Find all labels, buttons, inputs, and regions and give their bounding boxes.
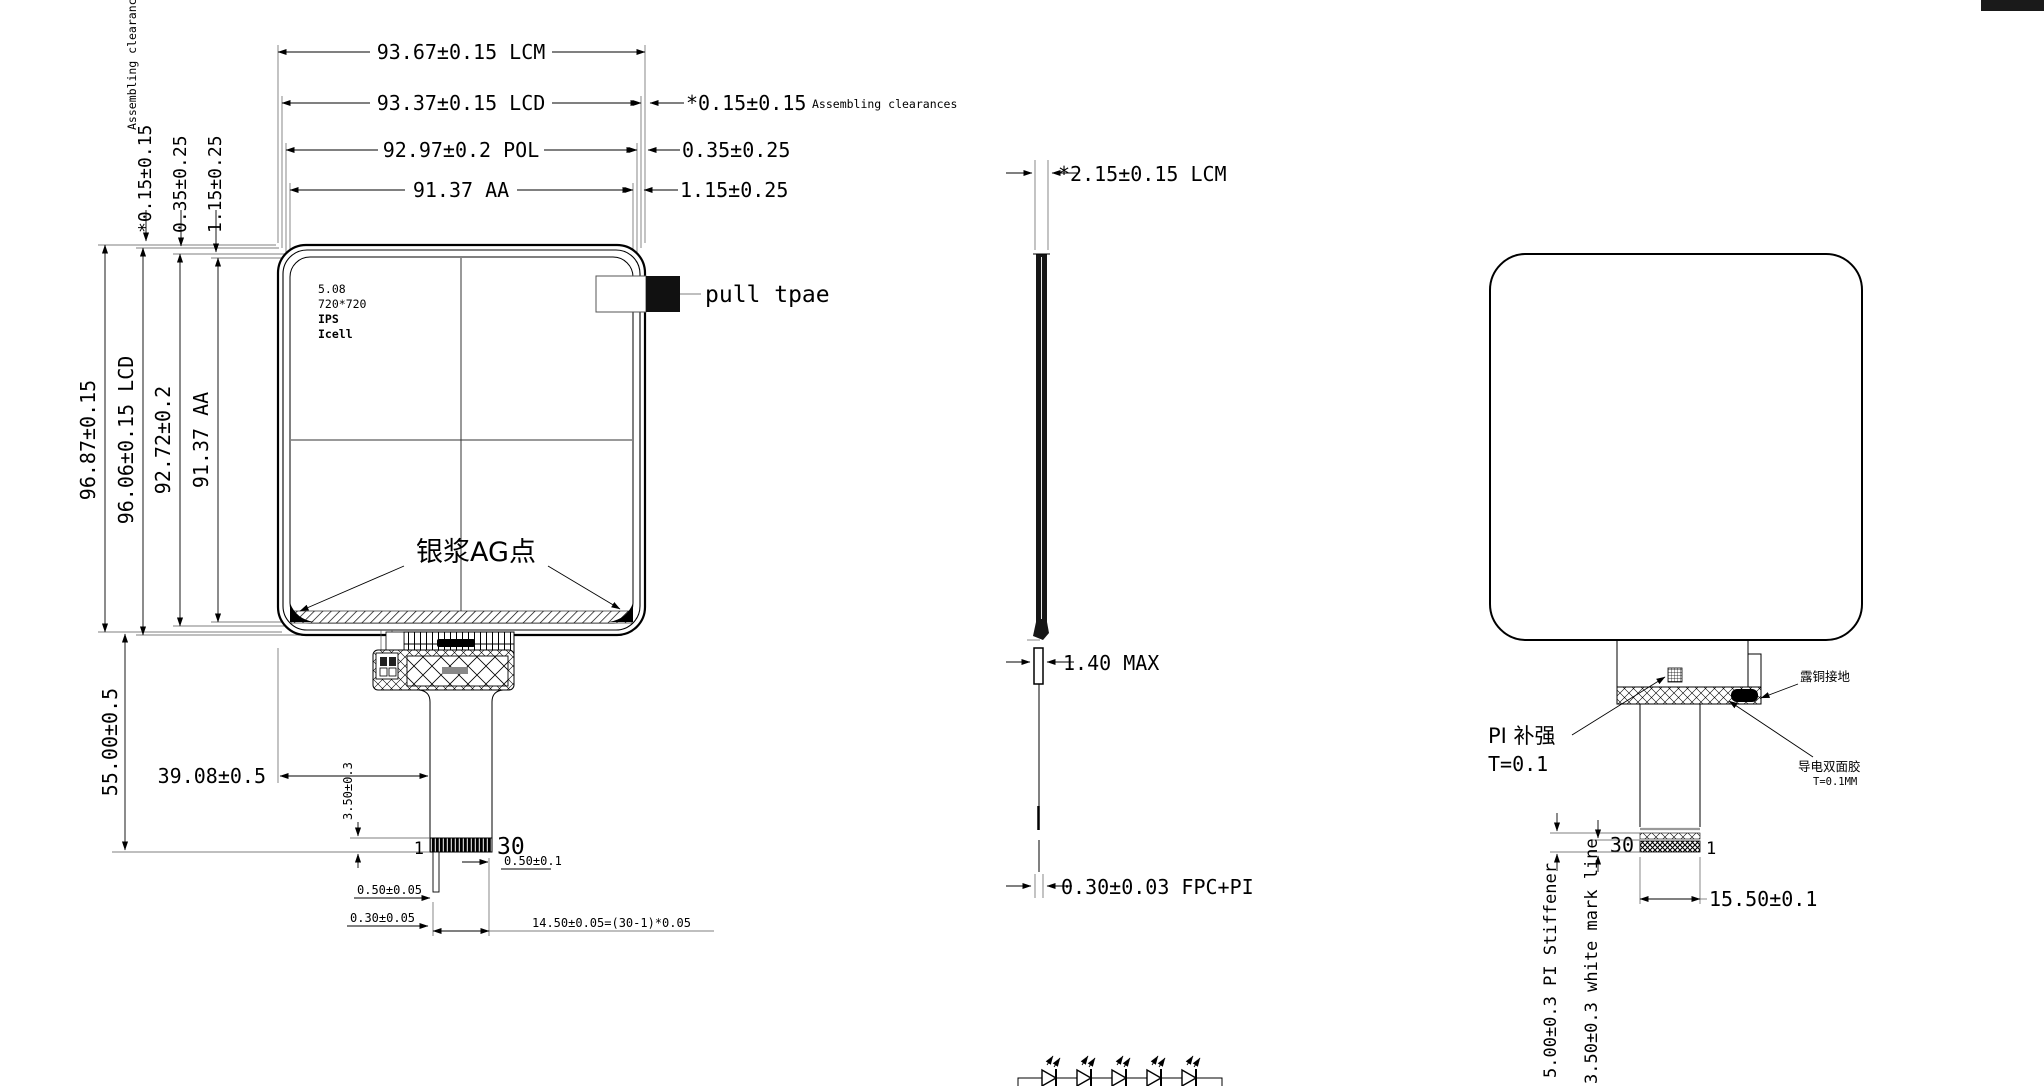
lcm-panel: pull tpae 5.08 720*720 IPS Icell [278,245,830,635]
max-height-box [1034,648,1043,684]
component-2 [389,657,396,666]
back-pin-1: 1 [1706,839,1716,859]
screen-edge-artifact [1981,0,2044,11]
panel-mode: IPS [318,312,339,326]
fpc-tail-left-edge [419,690,430,838]
dim-aa-width: 91.37 AA [413,178,509,202]
corner-dim-2: 0.35±0.25 [170,135,191,233]
connector-fingers [430,838,492,852]
conductive-tape-label: 导电双面胶 [1798,759,1861,774]
dim-pol-height: 92.72±0.2 [151,386,175,494]
pi-thickness: T=0.1 [1488,752,1548,776]
led-symbol-3 [1112,1056,1130,1086]
connector-stub [433,852,439,892]
panel-tech: Icell [318,327,353,341]
assembling-clearances-note: Assembling clearances [812,97,957,111]
led-symbol-4 [1147,1056,1165,1086]
component-1 [380,657,387,666]
dim-lcd-width: 93.37±0.15 LCD [377,91,546,115]
dim-stiffener-label: 5.00±0.3 PI Stiffener [1541,863,1561,1078]
pull-tab-white [596,276,646,312]
ag-label: 银浆AG点 [416,537,536,568]
engineering-drawing: 93.67±0.15 LCM 93.37±0.15 LCD *0.15±0.15… [0,0,2044,1086]
dim-55: 55.00±0.5 [98,688,122,796]
pin-1-label: 1 [414,839,424,859]
dim-assembly-clearance: *0.15±0.15 [686,91,806,115]
pi-label: PI 补强 [1488,724,1556,748]
component-area-marking [442,667,468,674]
drawing-canvas: 93.67±0.15 LCM 93.37±0.15 LCD *0.15±0.15… [0,0,2044,1086]
stiffener-band-upper [1640,833,1700,839]
dim-max: 1.40 MAX [1063,651,1159,675]
dim-markline-label: 3.50±0.3 white mark line [1582,838,1602,1084]
dim-thickness: *2.15±0.15 LCM [1058,162,1227,186]
front-view: 93.67±0.15 LCM 93.37±0.15 LCD *0.15±0.15… [76,0,957,936]
dim-total-pitch: 14.50±0.05=(30-1)*0.05 [532,916,691,930]
front-top-dimensions: 93.67±0.15 LCM 93.37±0.15 LCD *0.15±0.15… [278,40,957,258]
dim-aa-height: 91.37 AA [189,392,213,488]
backlight-led-circuit [1018,1056,1222,1086]
panel-resolution: 720*720 [318,297,367,311]
side-view: *2.15±0.15 LCM 1.40 MAX 0.30±0.03 FPC+PI [1006,160,1254,899]
copper-ground-pad [1731,689,1758,702]
dim-lcm-height: 96.87±0.15 [76,380,100,500]
dim-lcm-width: 93.67±0.15 LCM [377,40,546,64]
ic-marking [437,639,475,647]
front-corner-labels: Assembling clearances *0.15±0.15 0.35±0.… [125,0,226,252]
dim-pol-margin: 0.35±0.25 [682,138,790,162]
led-symbol-2 [1077,1056,1095,1086]
back-pin-30: 30 [1610,833,1634,857]
corner-dim-1: *0.15±0.15 [135,125,156,233]
led-symbol-5 [1182,1056,1200,1086]
panel-bottom-hatch [291,611,632,623]
fpc-tail-right-edge [492,690,503,838]
panel-foot [1033,622,1049,640]
back-outline [1490,254,1862,640]
dim-pin-width-2: 0.30±0.05 [350,911,415,925]
copper-ground-label: 露铜接地 [1800,669,1851,684]
pull-tab-label: pull tpae [705,282,830,308]
back-view: PI 补强 T=0.1 露铜接地 导电双面胶 T=0.1MM 30 1 15.5… [1488,254,1862,1084]
fpc-front [373,630,514,892]
dim-pitch-edge: 0.50±0.1 [504,854,562,868]
led-symbol-1 [1042,1056,1060,1086]
stiffener-band-lower [1640,841,1700,852]
pull-tab-black [646,276,680,312]
dim-3-5: 3.50±0.3 [341,762,355,820]
corner-assembling-note: Assembling clearances [125,0,139,130]
panel-size: 5.08 [318,282,346,296]
dim-pin-width: 0.50±0.05 [357,883,422,897]
back-tab [1748,654,1761,687]
pi-stiffener-patch [1668,668,1682,682]
conductive-tape-thickness: T=0.1MM [1813,776,1857,788]
dim-39: 39.08±0.5 [158,764,266,788]
dim-pol-width: 92.97±0.2 POL [383,138,540,162]
dim-lcd-height: 96.06±0.15 LCD [114,356,138,525]
dim-aa-margin: 1.15±0.25 [680,178,788,202]
dim-tail-width: 15.50±0.1 [1709,887,1817,911]
dim-fpc-thickness: 0.30±0.03 FPC+PI [1061,875,1254,899]
corner-dim-3: 1.15±0.25 [205,135,226,233]
